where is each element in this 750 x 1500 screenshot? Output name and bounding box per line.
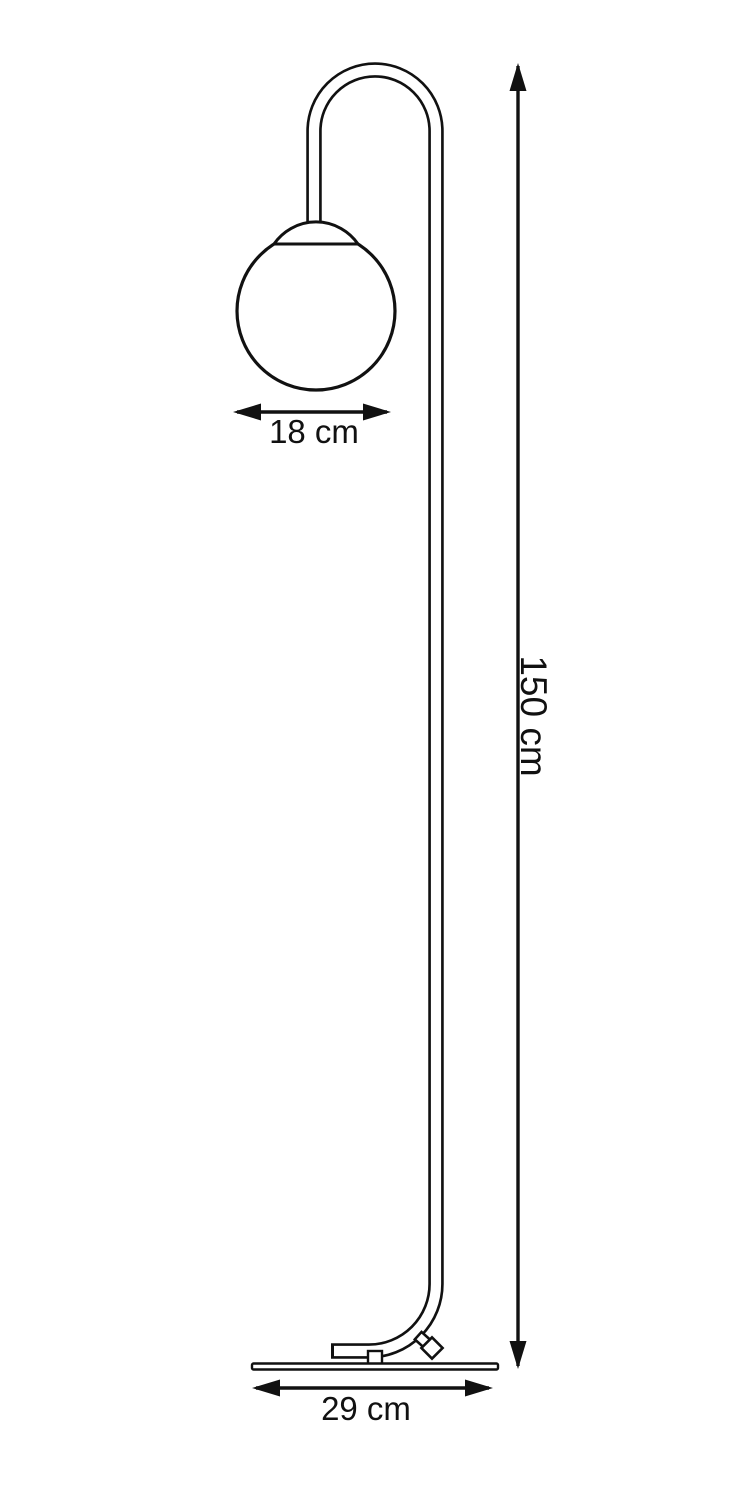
diagram-canvas: 18 cm 150 cm 29 cm (0, 0, 750, 1500)
base-plate (252, 1364, 498, 1370)
shade-width-dimension-label: 18 cm (269, 413, 359, 450)
height-arrowhead-bottom-icon (510, 1341, 527, 1369)
base-width-arrowhead-right-icon (465, 1380, 493, 1397)
mounting-tab (368, 1351, 382, 1364)
base-width-dimension: 29 cm (252, 1380, 493, 1428)
shade-width-dimension: 18 cm (233, 404, 391, 451)
height-dimension: 150 cm (510, 63, 555, 1369)
height-arrowhead-top-icon (510, 63, 527, 91)
floor-lamp-dimension-diagram: 18 cm 150 cm 29 cm (0, 0, 750, 1500)
shade-cap (274, 222, 358, 244)
shade-width-arrowhead-right-icon (363, 404, 391, 421)
base-width-arrowhead-left-icon (252, 1380, 280, 1397)
shade-width-arrowhead-left-icon (233, 404, 261, 421)
base-width-dimension-label: 29 cm (321, 1390, 411, 1427)
globe-shade (237, 232, 395, 390)
height-dimension-label: 150 cm (513, 655, 554, 776)
